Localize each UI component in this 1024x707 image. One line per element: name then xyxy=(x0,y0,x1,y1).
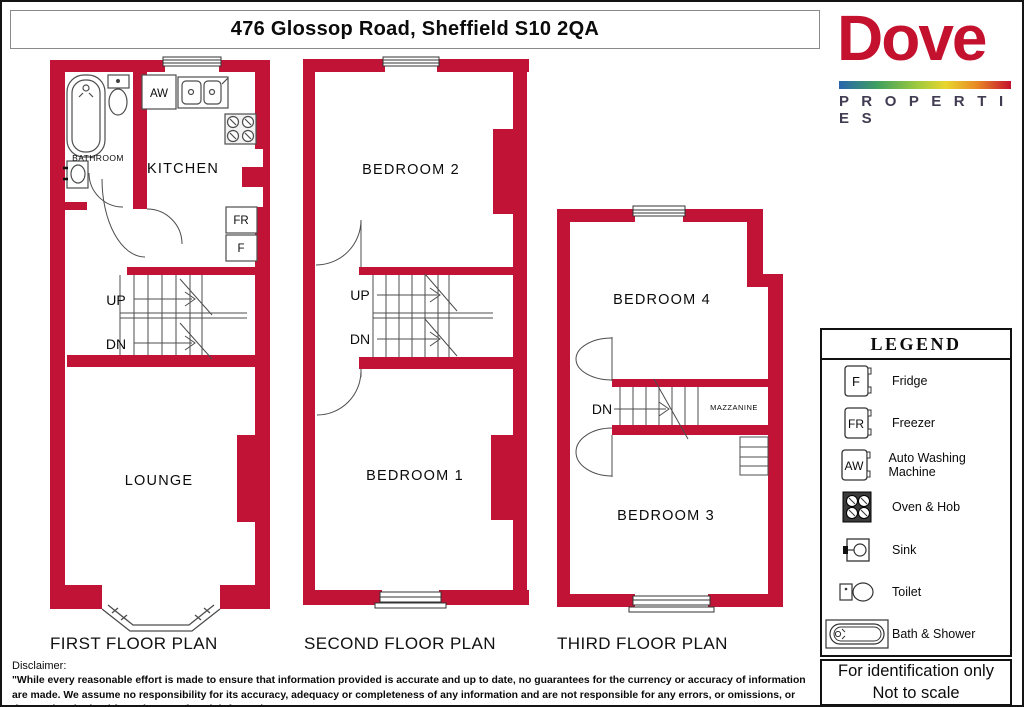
bath-icon xyxy=(67,75,105,157)
sink-icon xyxy=(63,161,88,188)
bath-shower-icon xyxy=(822,617,892,651)
svg-text:AW: AW xyxy=(845,459,865,473)
second-floor-walls xyxy=(303,59,529,605)
first-floor-plan: BATHROOM KITCHEN LOUNGE UP DN AW FR F xyxy=(42,57,290,637)
room-label-bedroom2: BEDROOM 2 xyxy=(362,162,460,178)
stair-label-dn: DN xyxy=(592,401,612,417)
legend-row-sink: Sink xyxy=(822,529,1010,571)
legend-row-washing-machine: AW Auto Washing Machine xyxy=(822,444,1010,486)
legend-row-fridge: F Fridge xyxy=(822,360,1010,402)
legend-label: Fridge xyxy=(892,374,927,388)
third-floor-plan: BEDROOM 4 BEDROOM 3 MAZZANINE DN xyxy=(550,197,790,619)
legend-row-oven-hob: Oven & Hob xyxy=(822,486,1010,528)
disclaimer-heading: Disclaimer: xyxy=(12,660,812,672)
freezer-icon: FR xyxy=(822,405,892,441)
dove-properties-logo: Dove P R O P E R T I E S xyxy=(835,2,1015,112)
legend-title: LEGEND xyxy=(822,330,1010,360)
room-label-mazzanine: MAZZANINE xyxy=(710,403,758,412)
second-floor-plan: BEDROOM 2 BEDROOM 1 UP DN xyxy=(297,57,542,617)
property-address: 476 Glossop Road, Sheffield S10 2QA xyxy=(231,18,599,41)
identification-line2: Not to scale xyxy=(872,683,959,705)
disclaimer: Disclaimer: "While every reasonable effo… xyxy=(12,660,812,707)
identification-line1: For identification only xyxy=(838,661,994,683)
appliance-label-aw: AW xyxy=(150,88,168,100)
staircase xyxy=(120,275,247,359)
room-label-bedroom1: BEDROOM 1 xyxy=(366,468,464,484)
stair-label-up: UP xyxy=(350,287,369,303)
washing-machine-icon: AW xyxy=(822,447,888,483)
toilet-icon xyxy=(108,75,129,115)
toilet-icon xyxy=(822,578,892,606)
kitchen-sink-icon xyxy=(178,77,228,108)
legend-panel: LEGEND F Fridge FR Fr xyxy=(820,328,1012,657)
second-floor-caption: SECOND FLOOR PLAN xyxy=(304,634,496,654)
logo-rainbow-bar xyxy=(839,81,1011,89)
legend-label: Auto Washing Machine xyxy=(888,451,1010,479)
svg-text:FR: FR xyxy=(848,417,864,431)
stair-label-dn: DN xyxy=(106,336,126,352)
legend-label: Toilet xyxy=(892,585,921,599)
floorplan-sheet: 476 Glossop Road, Sheffield S10 2QA Dove… xyxy=(0,0,1024,707)
legend-label: Freezer xyxy=(892,416,935,430)
bay-window xyxy=(102,605,220,631)
door-arcs xyxy=(316,220,361,415)
third-floor-caption: THIRD FLOOR PLAN xyxy=(557,634,728,654)
legend-row-bath: Bath & Shower xyxy=(822,613,1010,655)
first-floor-caption: FIRST FLOOR PLAN xyxy=(50,634,218,654)
oven-hob-icon xyxy=(822,490,892,524)
stair-label-dn: DN xyxy=(350,331,370,347)
legend-label: Bath & Shower xyxy=(892,627,975,641)
logo-wordmark: Dove xyxy=(837,0,986,80)
room-label-kitchen: KITCHEN xyxy=(147,161,219,177)
room-label-bathroom: BATHROOM xyxy=(72,153,124,163)
disclaimer-text: "While every reasonable effort is made t… xyxy=(12,674,812,707)
room-label-bedroom4: BEDROOM 4 xyxy=(613,292,711,308)
identification-note: For identification only Not to scale xyxy=(820,659,1012,706)
legend-label: Sink xyxy=(892,543,916,557)
logo-subtitle: P R O P E R T I E S xyxy=(839,93,1015,127)
stair-label-up: UP xyxy=(106,292,125,308)
room-label-lounge: LOUNGE xyxy=(125,473,193,489)
legend-row-toilet: Toilet xyxy=(822,571,1010,613)
storage-steps xyxy=(740,437,768,475)
appliance-label-fr: FR xyxy=(233,215,248,227)
sink-icon xyxy=(822,535,892,565)
page-title: 476 Glossop Road, Sheffield S10 2QA xyxy=(10,10,820,49)
legend-row-freezer: FR Freezer xyxy=(822,402,1010,444)
fridge-icon: F xyxy=(822,363,892,399)
oven-hob-icon xyxy=(225,114,256,144)
room-label-bedroom3: BEDROOM 3 xyxy=(617,508,715,524)
window-icon xyxy=(163,57,221,66)
svg-text:F: F xyxy=(852,374,860,389)
legend-label: Oven & Hob xyxy=(892,500,960,514)
appliance-label-f: F xyxy=(237,243,244,255)
staircase xyxy=(373,274,493,357)
